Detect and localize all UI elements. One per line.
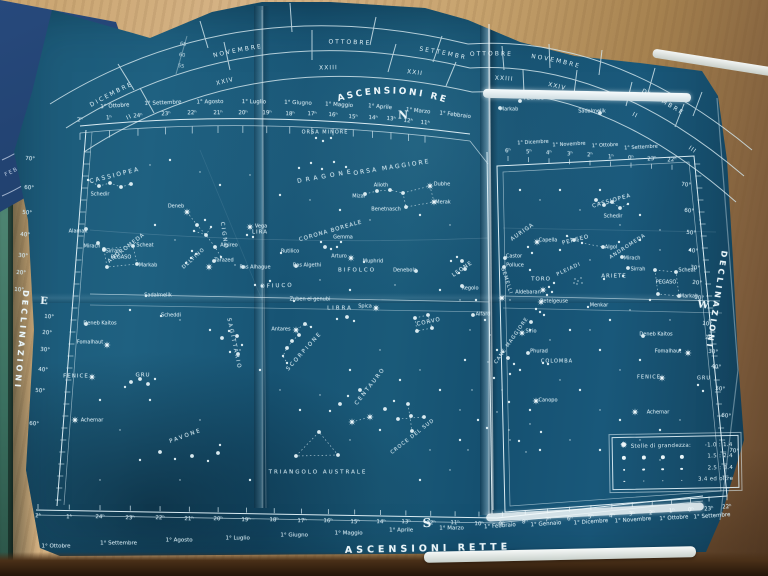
legend-title: Stelle di grandezza: [630, 442, 695, 449]
legend-sample-dots [630, 455, 695, 460]
magnitude-dot-icon [618, 481, 630, 483]
compass-east: E [40, 297, 48, 308]
legend-sample-dots [630, 479, 695, 482]
legend-range: 2.5 : 3.4 [695, 465, 733, 472]
legend-range: 3.4 ed oltre [695, 476, 733, 483]
vertical-fold-crease [254, 6, 270, 508]
blueprint-sheet [0, 0, 768, 576]
legend-range: 1.5 : 2.4 [695, 453, 733, 460]
horizontal-fold-crease [32, 293, 702, 303]
legend-row: 3.4 ed oltre [618, 474, 733, 487]
compass-south: S [422, 517, 431, 529]
magnitude-star-icon: ✹ [618, 442, 630, 451]
magnitude-dot-icon [618, 456, 630, 460]
magnitude-dot-icon [618, 468, 630, 471]
vertical-fold-crease [480, 10, 498, 515]
legend-sample-dots [630, 467, 695, 471]
legend-range: -1.0 : 1.4 [695, 441, 733, 448]
magnitude-legend: ✹ Stelle di grandezza: -1.0 : 1.4 1.5 : … [612, 435, 740, 490]
photo-star-atlas-on-table: FEBBRAIO GENNAIO DICEMBRE III II [0, 0, 768, 576]
compass-west: W [697, 300, 709, 311]
compass-north: N [398, 110, 408, 121]
